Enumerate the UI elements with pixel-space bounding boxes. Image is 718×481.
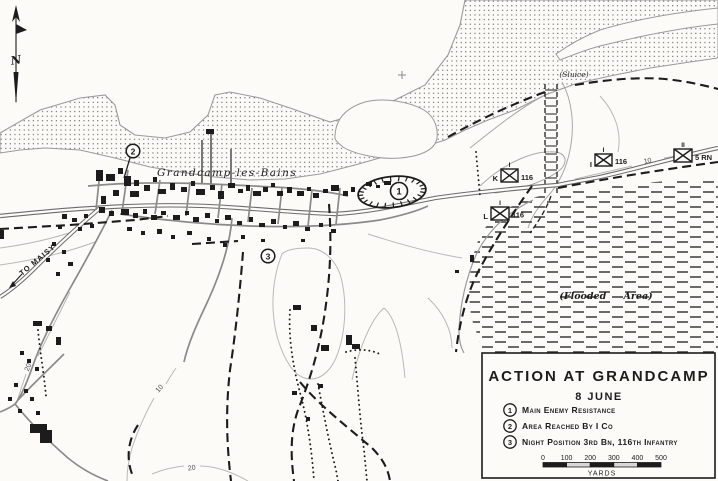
building: [20, 351, 24, 355]
building: [237, 221, 242, 225]
building: [306, 417, 310, 421]
sluice-label: (Sluice): [559, 70, 588, 79]
building: [84, 214, 88, 218]
building: [283, 225, 287, 229]
building: [191, 181, 195, 186]
building: [158, 189, 166, 194]
building: [173, 215, 180, 220]
building: [319, 223, 323, 227]
building: [56, 272, 60, 276]
building: [343, 191, 348, 196]
unit-letter: L: [483, 212, 488, 221]
building: [33, 321, 42, 326]
svg-text:500: 500: [655, 455, 667, 462]
svg-text:0: 0: [541, 455, 545, 462]
map-page: 1 2 3 I K 116 I L 116 I I 116 II 5 RN: [0, 0, 718, 481]
building: [101, 196, 106, 204]
building: [228, 183, 235, 188]
building: [311, 325, 317, 331]
svg-text:2: 2: [508, 422, 512, 431]
building: [384, 181, 391, 185]
svg-text:200: 200: [584, 455, 596, 462]
building: [331, 229, 336, 233]
building: [134, 180, 139, 186]
svg-text:3: 3: [508, 438, 512, 447]
marker-3-number: 3: [266, 252, 271, 262]
building: [143, 209, 147, 214]
building: [144, 185, 150, 191]
town-label: Grandcamp-les-Bains: [157, 167, 297, 179]
svg-text:400: 400: [632, 455, 644, 462]
building: [30, 397, 34, 401]
building: [18, 409, 22, 413]
building: [249, 217, 253, 222]
unit-number: 116: [615, 157, 627, 166]
building: [259, 223, 265, 227]
building: [171, 235, 175, 239]
scale-unit-label: YARDS: [588, 471, 617, 478]
building: [127, 227, 132, 231]
building: [215, 219, 219, 223]
building: [253, 191, 261, 196]
building: [301, 239, 305, 242]
building: [121, 209, 129, 215]
building: [210, 185, 215, 190]
legend: ACTION AT GRANDCAMP 8 JUNE 1 Main Enemy …: [482, 353, 715, 478]
building: [56, 337, 61, 345]
building: [161, 211, 166, 215]
building: [271, 219, 276, 224]
building: [305, 227, 310, 231]
building: [193, 217, 199, 222]
legend-title: ACTION AT GRANDCAMP: [488, 368, 709, 385]
building: [196, 189, 205, 195]
hachure-tick: [390, 177, 391, 182]
unit-number: 116: [521, 173, 533, 182]
unit-letter: K: [493, 174, 499, 183]
building: [40, 430, 52, 443]
svg-text:300: 300: [608, 455, 620, 462]
building: [170, 183, 175, 190]
building: [24, 389, 28, 393]
contour-label-20-south: 20: [187, 464, 196, 472]
building: [109, 211, 114, 216]
building: [218, 191, 224, 199]
marker-2-number: 2: [131, 147, 136, 157]
building: [58, 225, 62, 229]
building: [225, 215, 231, 220]
building: [181, 187, 187, 192]
building: [36, 411, 40, 415]
building: [14, 383, 18, 387]
building: [187, 231, 192, 235]
building: [297, 191, 304, 196]
building: [99, 207, 105, 213]
building: [261, 239, 265, 242]
building: [352, 344, 360, 349]
pier-head: [206, 129, 214, 134]
building: [106, 174, 115, 181]
building: [293, 221, 299, 226]
building: [46, 326, 52, 331]
unit-echelon: I: [509, 162, 511, 169]
unit-number: 5 RN: [695, 153, 712, 162]
marker-1-number: 1: [396, 187, 402, 198]
building: [323, 189, 328, 193]
legend-item-2-text: Area Reached By I Co: [522, 421, 613, 431]
unit-letter: I: [590, 160, 592, 169]
building: [271, 183, 275, 187]
building: [185, 211, 189, 215]
building: [246, 185, 250, 191]
building: [307, 187, 311, 191]
marker-3: 3: [261, 249, 275, 263]
building: [72, 218, 77, 222]
building: [118, 168, 123, 174]
building: [205, 213, 210, 218]
building: [68, 262, 73, 266]
hachure-tick: [421, 188, 426, 189]
lagoon-white-area: [335, 100, 437, 158]
building: [263, 187, 268, 192]
flooded-area-label: (Flooded Area): [559, 291, 652, 302]
building: [8, 397, 12, 401]
building: [376, 185, 380, 188]
building: [346, 335, 352, 345]
grandcamp-map: 1 2 3 I K 116 I L 116 I I 116 II 5 RN: [0, 0, 718, 481]
legend-item-3-text: Night Position 3rd Bn, 116th Infantry: [522, 437, 678, 447]
unit-echelon: II: [681, 142, 685, 149]
building: [141, 231, 145, 235]
building: [293, 305, 301, 310]
building: [113, 190, 119, 196]
hachure-tick: [358, 195, 363, 196]
building: [124, 176, 131, 186]
building: [238, 189, 243, 193]
building: [277, 191, 283, 196]
building: [313, 193, 319, 198]
building: [287, 187, 292, 193]
building: [292, 391, 297, 395]
building: [321, 345, 329, 351]
building: [351, 187, 355, 192]
legend-date: 8 JUNE: [575, 391, 623, 403]
unit-echelon: I: [603, 147, 605, 154]
building: [130, 191, 139, 197]
building: [78, 227, 82, 231]
building: [62, 250, 66, 254]
building: [151, 215, 157, 220]
building: [318, 384, 323, 388]
building: [35, 367, 39, 371]
building: [455, 270, 459, 273]
hachure-tick: [393, 202, 394, 207]
unit-echelon: I: [499, 200, 501, 207]
building: [470, 255, 474, 262]
building: [133, 213, 138, 218]
building: [46, 258, 50, 262]
building: [241, 235, 245, 239]
building: [90, 224, 94, 228]
svg-text:100: 100: [561, 455, 573, 462]
svg-text:1: 1: [508, 406, 512, 415]
building: [62, 214, 67, 219]
building: [96, 170, 103, 181]
unit-number: 116: [512, 211, 524, 220]
building: [27, 359, 31, 363]
building: [157, 229, 162, 234]
building: [0, 230, 4, 239]
building: [207, 237, 211, 241]
legend-item-1-text: Main Enemy Resistance: [522, 405, 616, 415]
legend-item-3: 3 Night Position 3rd Bn, 116th Infantry: [504, 436, 678, 448]
building: [223, 243, 227, 247]
building: [331, 185, 339, 191]
